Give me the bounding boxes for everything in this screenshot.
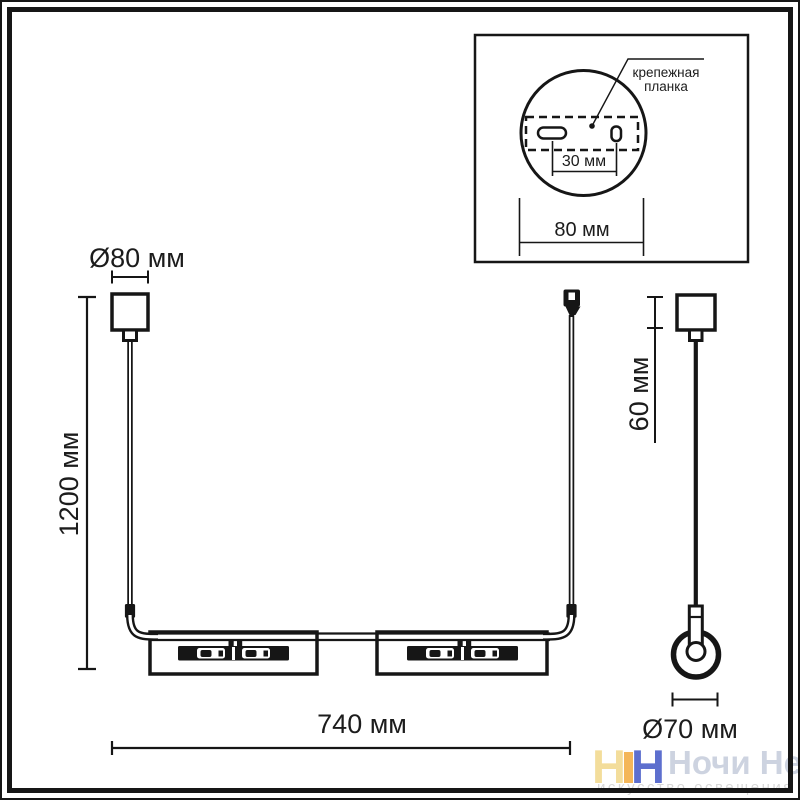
- pendant-ring-inner: [687, 643, 705, 661]
- canopy-stem-left: [124, 330, 137, 341]
- cable-top-fitting-right: [564, 290, 581, 316]
- suspension-cable-right: [566, 315, 576, 618]
- dim-canopy-height-label: 60 мм: [624, 357, 654, 432]
- dimension-drawing: крепежная планка 30 мм 80 мм: [0, 0, 800, 800]
- cable-curve-right: [543, 615, 572, 637]
- mounting-plate-label-line2: планка: [644, 79, 688, 94]
- dim-slot-spacing-label: 30 мм: [562, 153, 606, 170]
- inset-detail-box: крепежная планка 30 мм 80 мм: [475, 35, 748, 262]
- canopy-stem-side: [690, 330, 703, 341]
- side-view: 60 мм Ø70 мм: [624, 295, 738, 744]
- canopy-front-left: [112, 294, 148, 330]
- dim-fixture-width: [112, 741, 570, 755]
- inset-border: [475, 35, 748, 262]
- drawing-canvas: крепежная планка 30 мм 80 мм: [0, 0, 800, 800]
- suspension-cable-left: [125, 340, 135, 618]
- dim-fixture-width-label: 740 мм: [317, 709, 407, 739]
- mounting-plate-label-line1: крепежная: [633, 65, 700, 80]
- dim-canopy-diameter-label: Ø80 мм: [89, 243, 185, 273]
- cable-curve-left: [130, 615, 158, 637]
- dim-plate-width-label: 80 мм: [554, 219, 609, 241]
- dim-shade-diameter-label: Ø70 мм: [642, 714, 738, 744]
- front-view: Ø80 мм: [54, 243, 581, 755]
- dim-suspension-height-label: 1200 мм: [54, 432, 84, 537]
- dim-shade-diameter: [673, 693, 718, 707]
- canopy-side-view: [677, 295, 715, 330]
